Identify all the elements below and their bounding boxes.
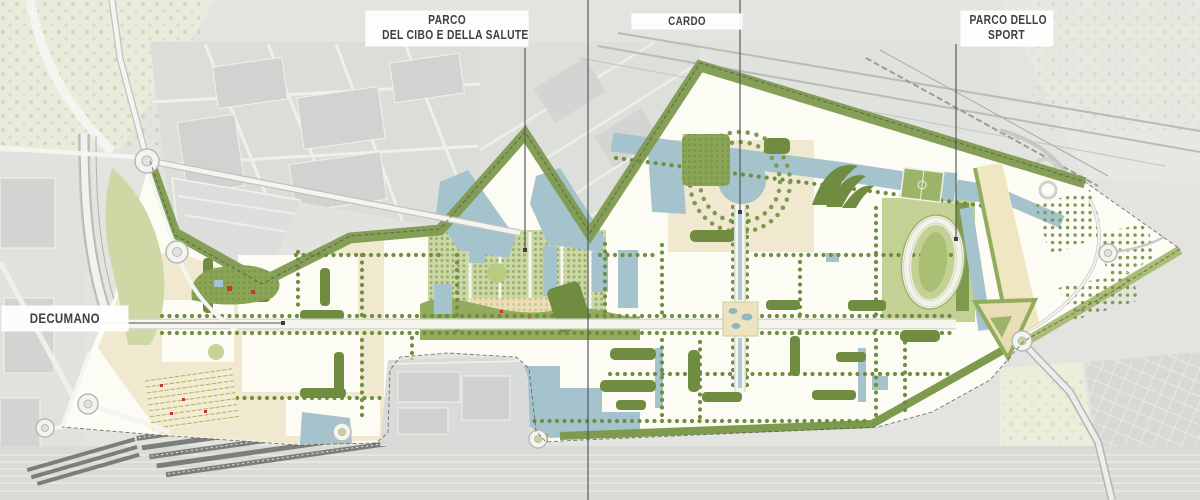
- label-parco-sport-line1: PARCO DELLO: [970, 13, 1047, 28]
- label-parco-dello-sport: PARCO DELLO SPORT: [961, 11, 1053, 46]
- label-parco-del-cibo-e-della-salute: PARCO DEL CIBO E DELLA SALUTE: [366, 11, 528, 46]
- masterplan-screenshot: PARCO DEL CIBO E DELLA SALUTE CARDO PARC…: [0, 0, 1200, 500]
- label-cardo: CARDO: [632, 14, 742, 29]
- label-parco-cibo-line2: DEL CIBO E DELLA SALUTE: [382, 28, 528, 43]
- label-parco-cibo-line1: PARCO: [428, 13, 466, 28]
- existing-buildings-notch: [380, 357, 540, 446]
- label-parco-sport-line2: SPORT: [989, 28, 1026, 43]
- masterplan-map: [0, 0, 1200, 500]
- label-decumano: DECUMANO: [2, 306, 128, 331]
